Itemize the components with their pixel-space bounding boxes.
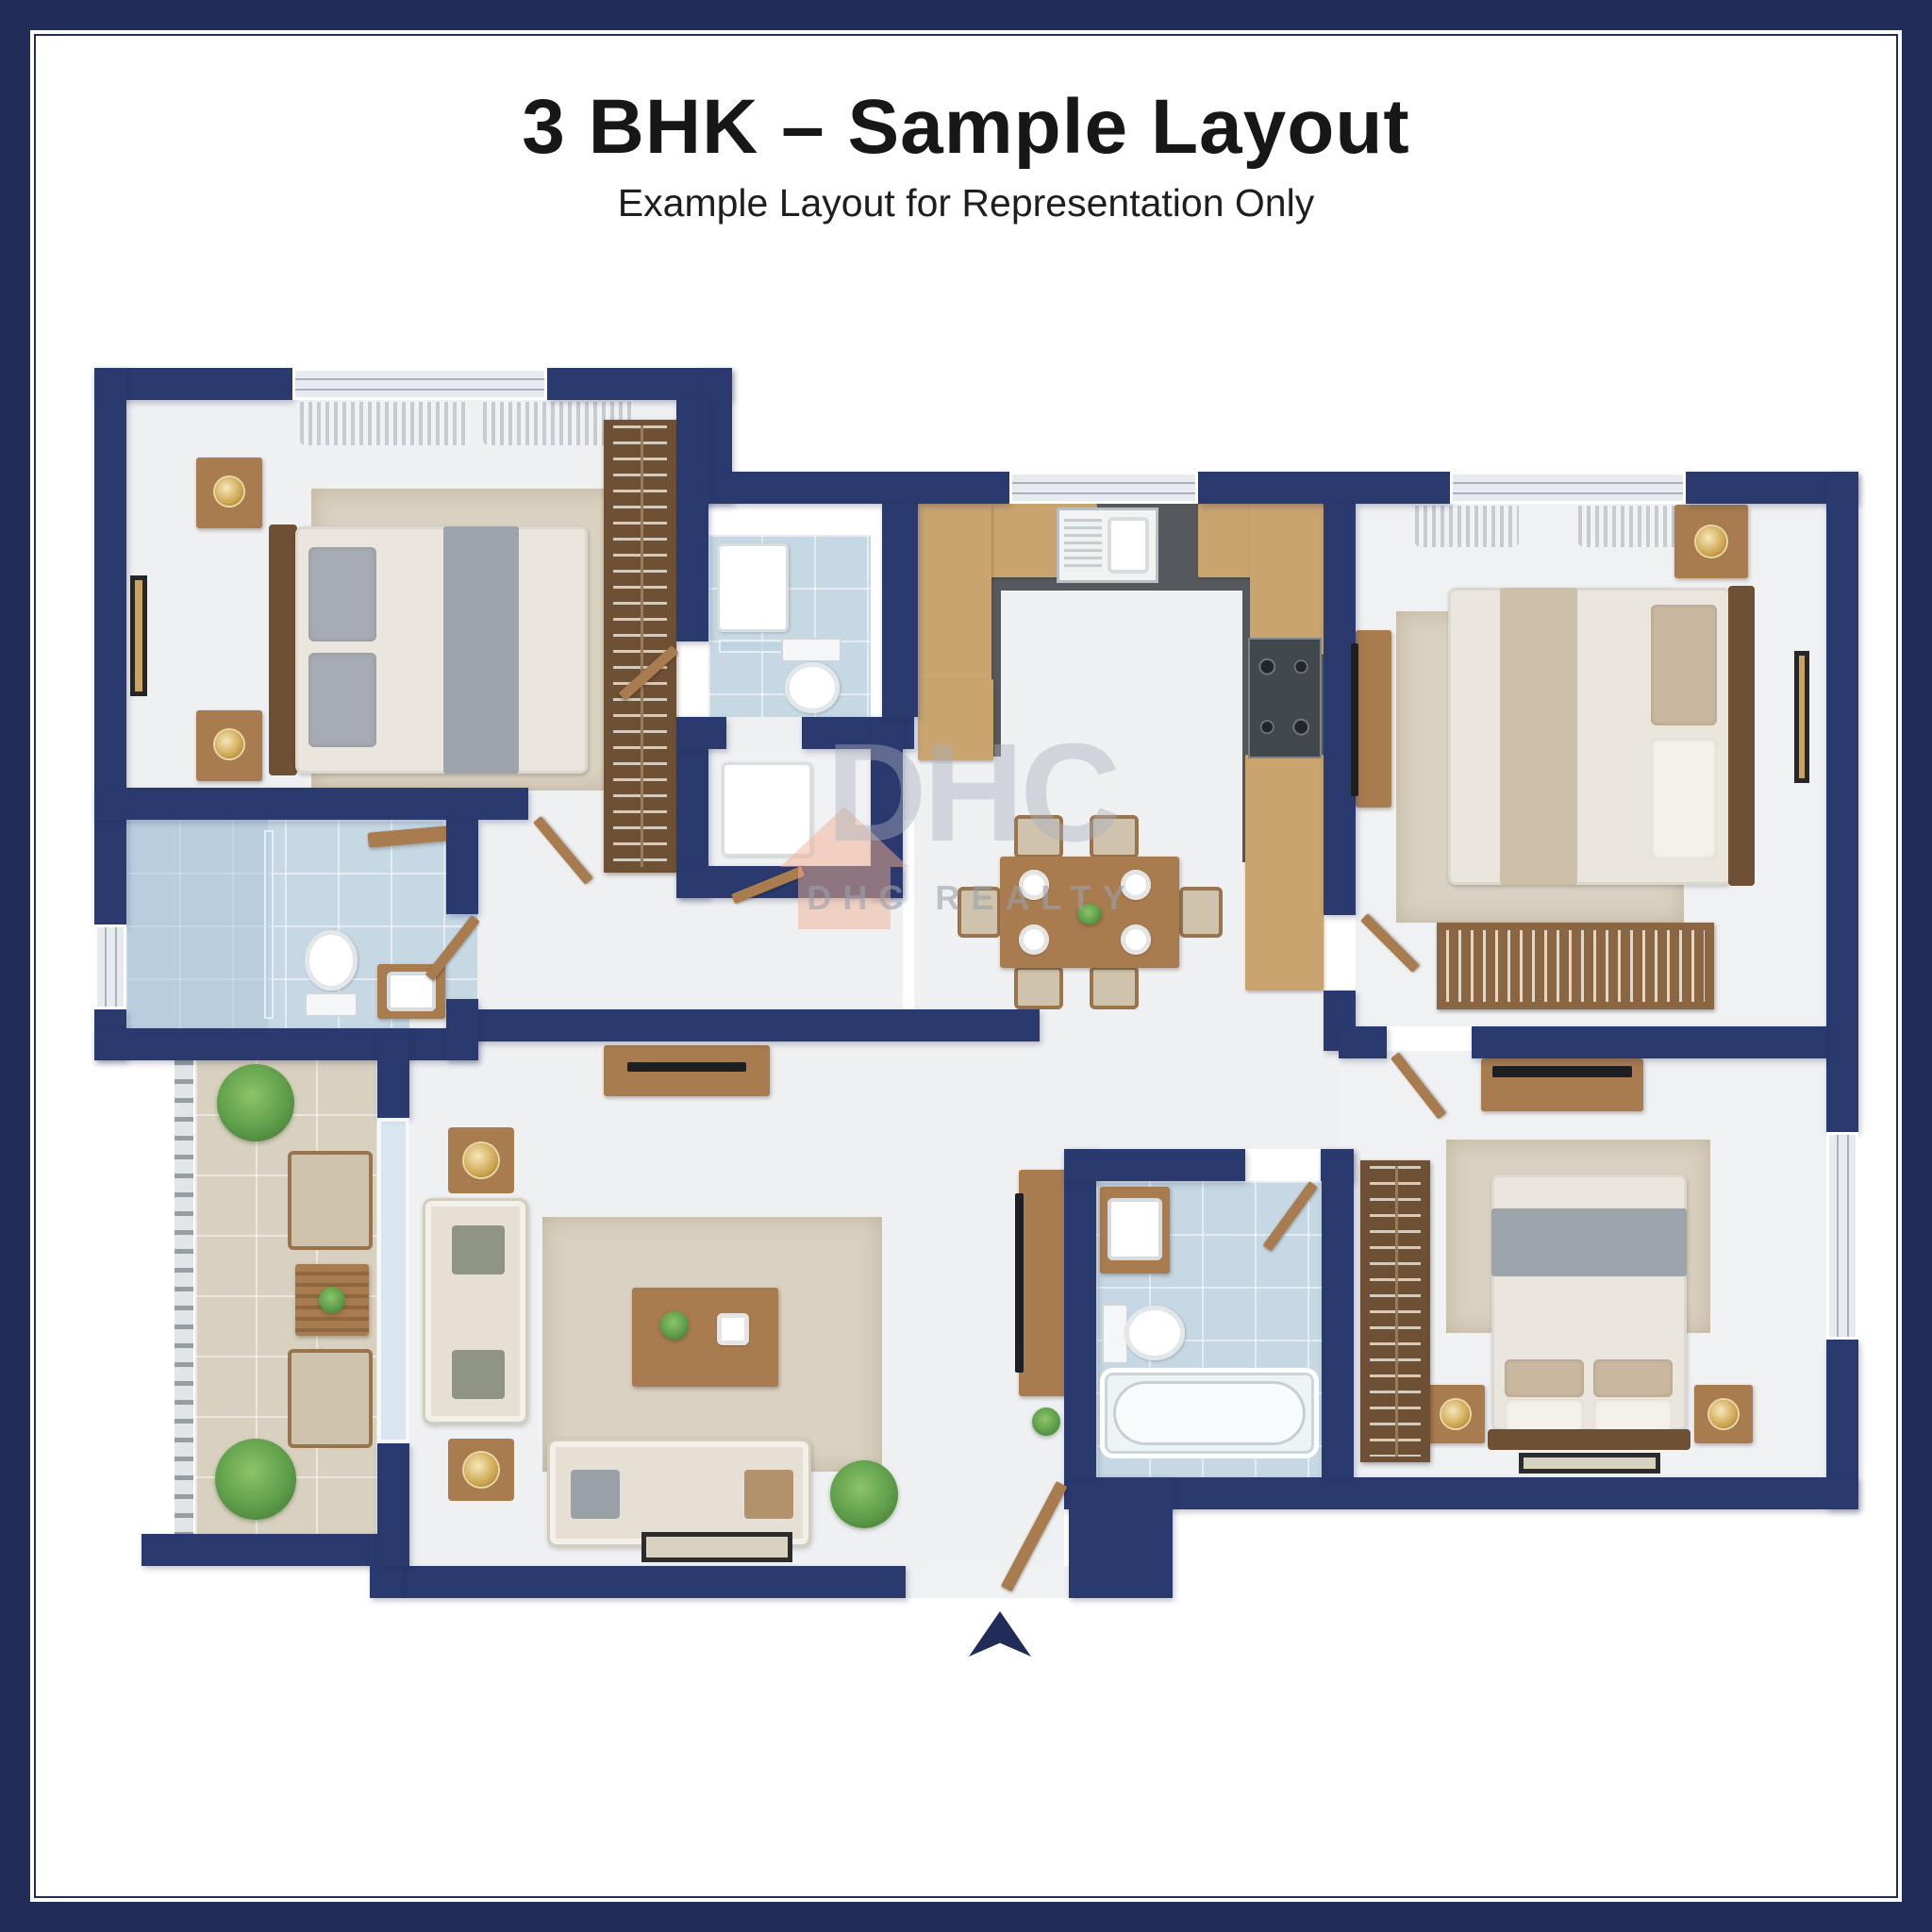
master-bed-pillow-2 <box>308 653 376 747</box>
hallway-console-decor <box>627 1062 746 1072</box>
dining-plate-3 <box>1019 924 1049 955</box>
entry-doormat <box>641 1532 792 1562</box>
master-bed-headboard <box>269 525 297 775</box>
bedroom-3-pillow-1 <box>1505 1359 1584 1397</box>
bathroom-bottom-bathtub <box>1100 1368 1319 1458</box>
bathroom-left-toilet-bowl <box>305 930 358 991</box>
page-subtitle: Example Layout for Representation Only <box>0 181 1932 225</box>
dining-chair-bottom-1 <box>1014 966 1063 1009</box>
master-nightstand-lamp-top <box>215 477 243 506</box>
dining-chair-left <box>958 887 1001 938</box>
living-sofa-horizontal <box>547 1439 811 1547</box>
wall-balcony-partition-north <box>377 1028 409 1118</box>
wall-left-1 <box>94 368 126 924</box>
kitchen-sink-basin <box>1108 517 1149 574</box>
bedroom-3-pillow-4 <box>1593 1399 1673 1433</box>
kitchen-cabinet-top-right-v <box>1250 504 1324 655</box>
bedroom-2-curtain-1 <box>1415 506 1519 547</box>
master-bedroom-wall-art <box>130 575 147 696</box>
dining-plate-4 <box>1121 924 1151 955</box>
bedroom-3-pillow-3 <box>1505 1399 1584 1433</box>
wall-bathroom-left-south <box>94 1028 477 1060</box>
living-coffee-table-tray <box>717 1313 749 1345</box>
bedroom-3-bed <box>1488 1174 1690 1450</box>
bedroom-3-window <box>1826 1132 1858 1340</box>
bedroom-2-bed <box>1448 580 1755 891</box>
wall-bedroom2-bedroom3-divider-b <box>1472 1026 1826 1058</box>
kitchen-stove <box>1248 638 1322 758</box>
living-tv <box>1015 1193 1024 1373</box>
bathroom-bottom-sink <box>1108 1198 1162 1260</box>
living-coffee-table-plant <box>660 1311 689 1340</box>
living-console-plant <box>1032 1407 1060 1436</box>
wall-bathroom-bottom-east <box>1322 1149 1354 1477</box>
kitchen-sink <box>1057 508 1158 583</box>
bedroom-3-throw <box>1491 1208 1687 1276</box>
wall-top-3 <box>700 472 1009 504</box>
living-sofa-vertical-cushion-2 <box>452 1350 505 1399</box>
bedroom-2-window <box>1450 472 1686 504</box>
kitchen-window <box>1009 472 1198 504</box>
bedroom-3-pillow-2 <box>1593 1359 1673 1397</box>
living-tv-console <box>1019 1170 1066 1396</box>
bedroom-2-curtain-2 <box>1578 506 1684 547</box>
bathroom-top-shower-tray <box>717 543 789 632</box>
living-sofa-vertical-cushion-1 <box>452 1225 505 1274</box>
master-bedroom-curtain-1 <box>300 402 470 445</box>
dining-plate-1 <box>1019 870 1049 900</box>
wall-long-center <box>446 1009 1040 1041</box>
balcony-armchair-2 <box>288 1349 373 1448</box>
kitchen-cabinet-right-low <box>1245 755 1324 991</box>
utility-appliance <box>722 762 812 857</box>
wall-bottom-right <box>1064 1477 1858 1509</box>
wall-master-bedroom-south <box>94 788 528 820</box>
master-bed <box>269 519 590 781</box>
living-coffee-table <box>632 1288 778 1387</box>
wall-bathroom-bottom-north-a <box>1064 1149 1245 1181</box>
dining-east-floor <box>1040 1009 1355 1149</box>
balcony-armchair-1 <box>288 1151 373 1250</box>
dining-centerpiece <box>1077 904 1102 924</box>
wall-utility-east <box>871 717 903 898</box>
balcony-sliding-door <box>377 1118 409 1443</box>
wall-bathroom-left-east-a <box>446 820 478 914</box>
wall-bottom-balcony <box>142 1534 402 1566</box>
balcony-railing <box>175 1060 193 1534</box>
wall-right-1 <box>1826 472 1858 1132</box>
bedroom-2-pillow-2 <box>1651 739 1717 859</box>
wall-bathroom-bottom-west <box>1064 1149 1096 1477</box>
dining-plate-2 <box>1121 870 1151 900</box>
dining-chair-top-2 <box>1090 815 1139 858</box>
master-wardrobe <box>604 420 676 873</box>
bathroom-left-window <box>94 924 126 1009</box>
living-sofa-vertical <box>423 1198 528 1424</box>
bedroom-2-pillow-1 <box>1651 605 1717 725</box>
living-side-table-bottom-decor <box>464 1453 498 1487</box>
dining-chair-top-1 <box>1014 815 1063 858</box>
kitchen-cabinet-top-left-v <box>918 504 991 683</box>
bathroom-left-shower-area <box>126 820 268 1028</box>
living-floor-plant <box>830 1460 898 1528</box>
wall-wardrobe-east-a <box>676 400 708 641</box>
bathroom-top-toilet-bowl <box>785 662 840 713</box>
bedroom-2-bookshelf <box>1437 923 1714 1009</box>
bedroom-3-wardrobe <box>1360 1160 1430 1462</box>
entry-threshold <box>906 1566 1069 1598</box>
wall-bottom-living <box>402 1566 906 1598</box>
bedroom-3-lamp-right <box>1709 1400 1738 1428</box>
wall-bathroom-left-east-b <box>446 999 478 1060</box>
master-nightstand-lamp-bottom <box>215 730 243 758</box>
entrance-direction-arrow <box>969 1611 1031 1657</box>
dining-chair-right <box>1179 887 1223 938</box>
balcony-table-plant <box>319 1287 345 1313</box>
wall-bathroom-top-south-a <box>676 717 726 749</box>
bedroom-3-tv <box>1492 1066 1632 1077</box>
wall-balcony-partition-south <box>377 1443 409 1566</box>
master-bedroom-window <box>292 368 547 400</box>
master-bed-pillow-1 <box>308 547 376 641</box>
wall-bedroom2-bedroom3-divider-a <box>1339 1026 1387 1058</box>
bedroom-2-runner <box>1500 588 1577 885</box>
bathroom-left-glass-partition <box>264 830 274 1019</box>
master-bed-throw <box>443 526 519 774</box>
bedroom-2-tv <box>1351 643 1358 796</box>
balcony-plant-bottom <box>215 1439 296 1520</box>
kitchen-sink-drainboard <box>1064 519 1102 572</box>
living-sofa-horizontal-cushion-2 <box>744 1470 793 1519</box>
bathroom-top-toilet-tank <box>781 638 841 662</box>
bedroom-3-lamp-left <box>1441 1400 1470 1428</box>
bathroom-left-toilet-tank <box>305 992 358 1017</box>
wall-kitchen-west <box>882 504 918 717</box>
bedroom-2-headboard <box>1728 586 1755 886</box>
bedroom-2-lamp <box>1696 526 1726 557</box>
floor-plan-page: 3 BHK – Sample Layout Example Layout for… <box>0 0 1932 1932</box>
living-sofa-horizontal-cushion-1 <box>571 1470 620 1519</box>
wall-top-4 <box>1198 472 1450 504</box>
page-title: 3 BHK – Sample Layout <box>0 83 1932 172</box>
bedroom-2-wall-art <box>1794 651 1809 783</box>
dining-chair-bottom-2 <box>1090 966 1139 1009</box>
balcony-plant-top <box>217 1064 294 1141</box>
bedroom-3-floor-mat <box>1519 1453 1660 1474</box>
wall-entry-block <box>1069 1477 1173 1598</box>
living-side-table-top-decor <box>464 1143 498 1177</box>
bedroom-3-headboard <box>1488 1429 1690 1450</box>
floor-plan: DHC DHC REALTY <box>75 264 1858 1660</box>
bathroom-bottom-toilet-bowl <box>1124 1306 1185 1360</box>
kitchen-cabinet-left-low <box>918 679 993 760</box>
bedroom-2-tv-console <box>1356 630 1391 808</box>
